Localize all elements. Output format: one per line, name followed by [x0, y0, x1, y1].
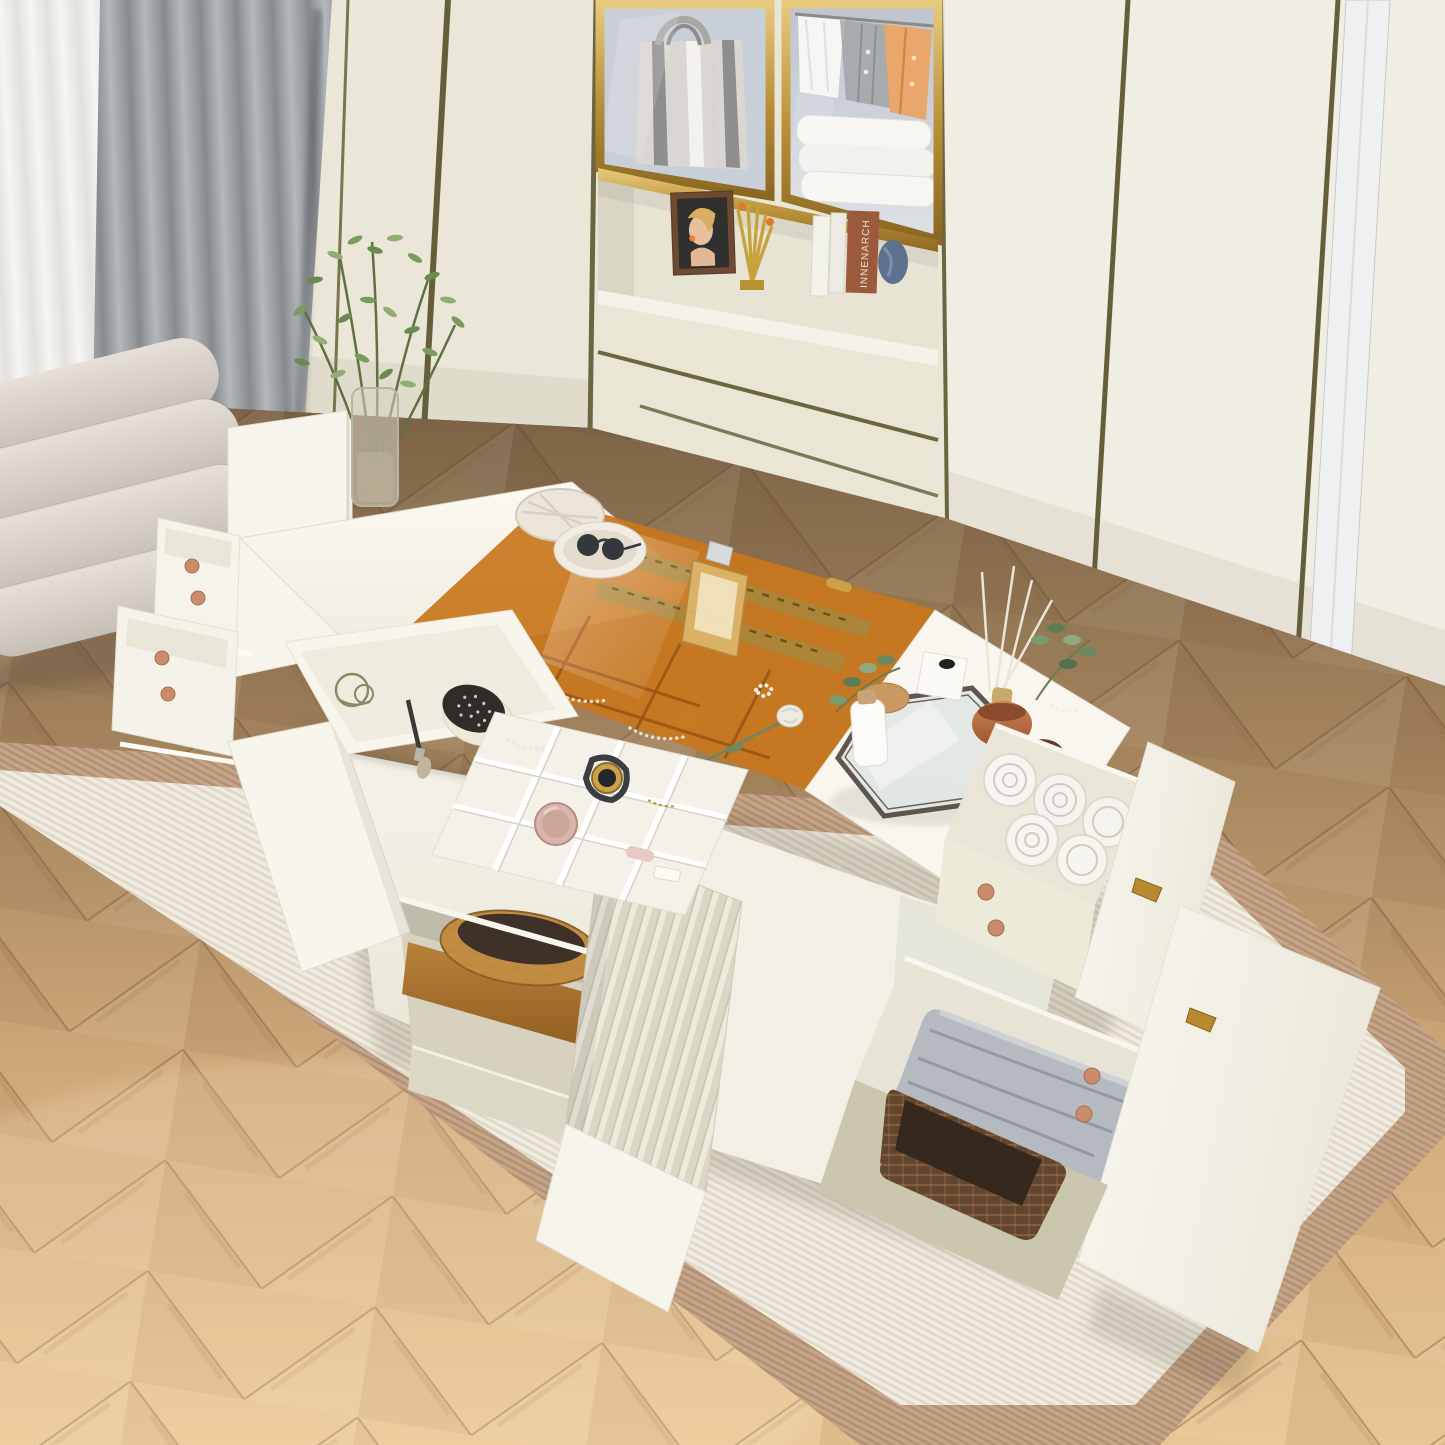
rosegold-knob: [978, 884, 994, 900]
powder-compact: [535, 803, 577, 845]
rosegold-knob: [185, 559, 199, 573]
white-gift-box: [917, 651, 968, 700]
gold-watch: [586, 758, 627, 800]
vase-water: [357, 452, 393, 502]
photo-frame: [671, 191, 736, 275]
orange-coat: [884, 24, 932, 120]
rosegold-knob: [1076, 1106, 1092, 1122]
rosegold-knob: [161, 687, 175, 701]
product-photo-scene: INNENARCH: [0, 0, 1445, 1445]
rosegold-knob: [191, 591, 205, 605]
scene-canvas: INNENARCH: [0, 0, 1445, 1445]
rosegold-knob: [155, 651, 169, 665]
denim-roll: [878, 240, 908, 284]
rosegold-knob: [1084, 1068, 1100, 1084]
rosegold-knob: [988, 920, 1004, 936]
